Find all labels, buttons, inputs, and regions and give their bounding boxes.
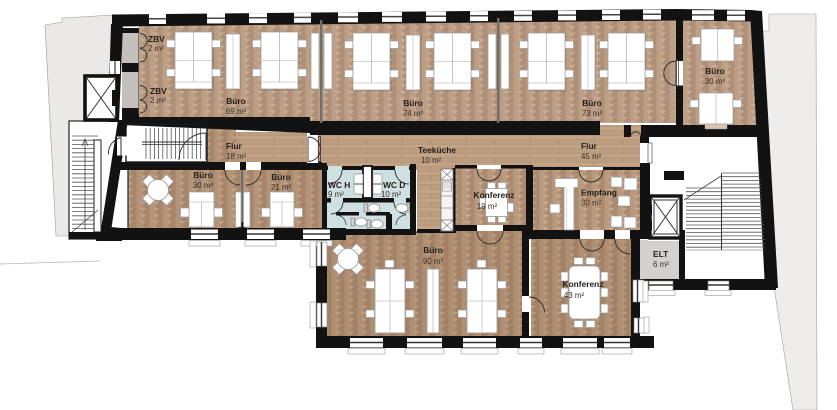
- svg-text:Büro: Büro: [423, 245, 443, 255]
- svg-text:Konferenz: Konferenz: [563, 279, 604, 289]
- svg-text:10 m²: 10 m²: [381, 190, 402, 199]
- svg-text:43 m²: 43 m²: [564, 291, 585, 300]
- svg-text:9 m²: 9 m²: [328, 190, 344, 199]
- svg-text:WC H: WC H: [328, 180, 350, 190]
- svg-text:Büro: Büro: [271, 172, 291, 182]
- svg-text:2 m²: 2 m²: [150, 96, 166, 105]
- svg-text:6 m²: 6 m²: [653, 260, 669, 269]
- svg-text:Flur: Flur: [581, 141, 598, 151]
- svg-text:74 m²: 74 m²: [403, 109, 424, 118]
- svg-text:30 m²: 30 m²: [581, 199, 602, 208]
- svg-text:Konferenz: Konferenz: [474, 190, 515, 200]
- svg-text:Büro: Büro: [193, 170, 213, 180]
- svg-text:73 m²: 73 m²: [582, 109, 603, 118]
- svg-text:Flur: Flur: [226, 141, 243, 151]
- svg-text:Büro: Büro: [403, 98, 423, 108]
- svg-text:21 m²: 21 m²: [271, 183, 292, 192]
- svg-text:45 m²: 45 m²: [581, 152, 602, 161]
- svg-text:ZBV: ZBV: [148, 34, 165, 44]
- svg-text:30 m²: 30 m²: [193, 181, 214, 190]
- svg-text:WC D: WC D: [383, 180, 405, 190]
- svg-text:69 m²: 69 m²: [226, 107, 247, 116]
- svg-text:30 m²: 30 m²: [705, 77, 726, 86]
- svg-text:Büro: Büro: [582, 98, 602, 108]
- svg-text:2 m²: 2 m²: [148, 44, 164, 53]
- svg-text:Teeküche: Teeküche: [418, 145, 456, 155]
- svg-text:18 m²: 18 m²: [226, 152, 247, 161]
- svg-text:90 m²: 90 m²: [423, 257, 444, 266]
- svg-text:ZBV: ZBV: [150, 86, 167, 96]
- svg-text:Empfang: Empfang: [581, 188, 617, 198]
- svg-text:10 m²: 10 m²: [421, 156, 442, 165]
- svg-text:19 m²: 19 m²: [477, 202, 498, 211]
- svg-text:Büro: Büro: [705, 66, 725, 76]
- svg-text:ELT: ELT: [653, 249, 669, 259]
- svg-text:Büro: Büro: [226, 96, 246, 106]
